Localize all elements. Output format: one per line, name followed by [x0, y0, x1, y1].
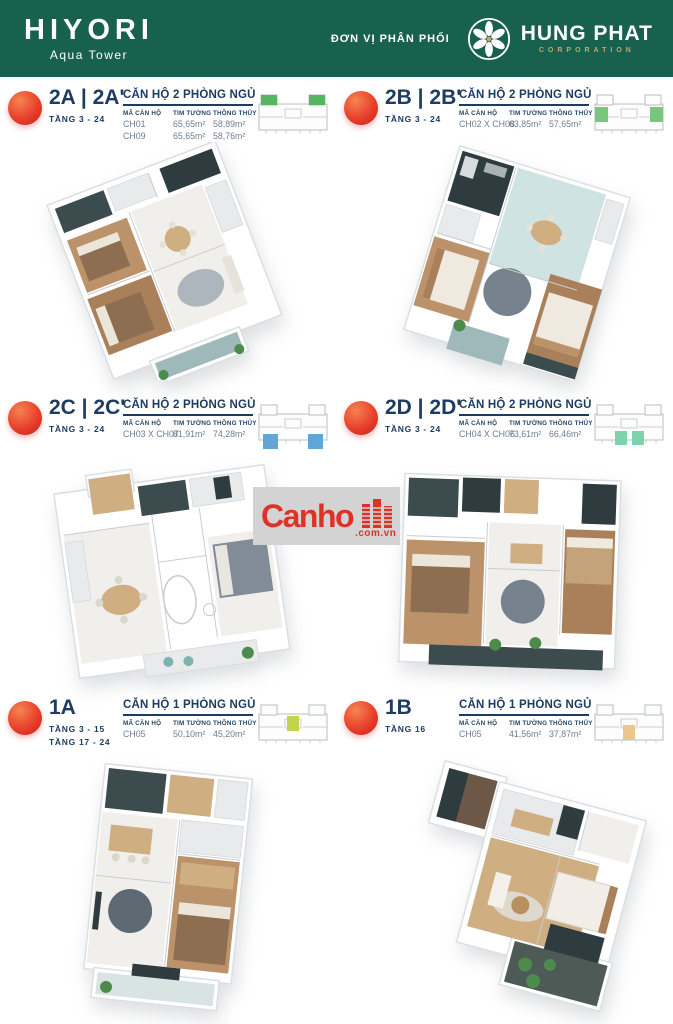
col-header-net: THÔNG THỦY [549, 110, 589, 117]
keyplan-highlight [263, 434, 278, 449]
net-area: 37,87m² [549, 729, 589, 739]
gross-area: 81,91m² [173, 429, 213, 439]
keyplan-highlight [595, 107, 608, 122]
unit-floor-range: TẦNG 3 - 24 [49, 113, 123, 126]
floorplan-2a-render [0, 142, 327, 380]
distributor-name: HUNG PHAT [521, 23, 653, 44]
unit-badge-icon [344, 701, 378, 735]
unit-code: CH05 [459, 729, 509, 739]
unit-code: CH01 [123, 119, 173, 129]
unit-floor-range: TẦNG 17 - 24 [49, 736, 123, 749]
unit-card-1b: 1B TẦNG 16 CĂN HỘ 1 PHÒNG NGỦ MÃ CĂN HỘ … [336, 687, 673, 1024]
keyplan-highlight [623, 725, 635, 740]
unit-spec-table: CĂN HỘ 2 PHÒNG NGỦ MÃ CĂN HỘ TIM TƯỜNG T… [123, 89, 253, 141]
hungphat-flower-icon [466, 16, 512, 62]
unit-head-2b: 2B | 2B' TẦNG 3 - 24 CĂN HỘ 2 PHÒNG NGỦ … [336, 77, 673, 143]
keyplan-highlight [650, 107, 663, 122]
living-area [485, 522, 561, 646]
unit-head-2d: 2D | 2D' TẦNG 3 - 24 CĂN HỘ 2 PHÒNG NGỦ … [336, 387, 673, 453]
unit-card-1a: 1A TẦNG 3 - 15 TẦNG 17 - 24 CĂN HỘ 1 PHÒ… [0, 687, 336, 1024]
keyplan-2c-icon [253, 401, 333, 453]
table-title: CĂN HỘ 2 PHÒNG NGỦ [123, 89, 253, 106]
table-title: CĂN HỘ 1 PHÒNG NGỦ [123, 699, 253, 716]
col-header-net: THÔNG THỦY [549, 720, 589, 727]
keyplan-2d-icon [589, 401, 669, 453]
unit-code: CH09 [123, 131, 173, 141]
unit-title: 2D | 2D' [385, 397, 459, 419]
unit-code: CH02 X CH08 [459, 119, 509, 129]
gross-area: 73,61m² [509, 429, 549, 439]
floorplan-2d-render [340, 451, 670, 681]
floorplan-1b-render [346, 752, 673, 1018]
table-title: CĂN HỘ 2 PHÒNG NGỦ [459, 399, 589, 416]
gross-area: 65,65m² [173, 119, 213, 129]
gross-area: 50,10m² [173, 729, 213, 739]
gross-area: 41,56m² [509, 729, 549, 739]
net-area: 58,76m² [213, 131, 253, 141]
col-header-gross: TIM TƯỜNG [509, 110, 549, 117]
floorplan-2b-render [340, 142, 670, 380]
col-header-net: THÔNG THỦY [213, 110, 253, 117]
unit-badge-icon [344, 401, 378, 435]
unit-title: 1B [385, 697, 459, 719]
gross-area: 63,85m² [509, 119, 549, 129]
unit-badge-icon [344, 91, 378, 125]
unit-floor-range: TẦNG 16 [385, 723, 459, 736]
hiyori-logo: HIYORI Aqua Tower [24, 16, 154, 62]
unit-badge-icon [8, 401, 42, 435]
keyplan-highlight [309, 95, 325, 105]
col-header-gross: TIM TƯỜNG [173, 720, 213, 727]
unit-spec-table: CĂN HỘ 2 PHÒNG NGỦ MÃ CĂN HỘ TIM TƯỜNG T… [123, 399, 253, 439]
brand-subtitle: Aqua Tower [50, 48, 128, 62]
net-area: 74,28m² [213, 429, 253, 439]
keyplan-1b-icon [589, 701, 669, 753]
living-area [86, 811, 177, 970]
col-header-code: MÃ CĂN HỘ [459, 110, 509, 117]
col-header-gross: TIM TƯỜNG [509, 420, 549, 427]
net-area: 58,89m² [213, 119, 253, 129]
kitchen-dining-area [64, 523, 167, 664]
floorplan-2c-render [3, 451, 333, 681]
watermark-buildings-icon [360, 496, 396, 530]
unit-floor-range: TẦNG 3 - 15 [49, 723, 123, 736]
col-header-gross: TIM TƯỜNG [173, 420, 213, 427]
floorplan-1a-render [0, 752, 325, 1018]
header-bar: HIYORI Aqua Tower ĐƠN VỊ PHÂN PHỐI HUNG … [0, 0, 673, 77]
unit-title: 1A [49, 697, 123, 719]
table-title: CĂN HỘ 2 PHÒNG NGỦ [123, 399, 253, 416]
unit-title: 2C | 2C' [49, 397, 123, 419]
watermark-suffix: .com.vn [355, 528, 396, 539]
watermark-canho: Canho .com.vn [253, 487, 400, 545]
keyplan-1a-icon [253, 701, 333, 753]
keyplan-highlight [632, 431, 644, 445]
unit-card-2b: 2B | 2B' TẦNG 3 - 24 CĂN HỘ 2 PHÒNG NGỦ … [336, 77, 673, 387]
unit-floor-range: TẦNG 3 - 24 [49, 423, 123, 436]
unit-code: CH04 X CH06 [459, 429, 509, 439]
col-header-net: THÔNG THỦY [213, 720, 253, 727]
col-header-gross: TIM TƯỜNG [509, 720, 549, 727]
col-header-code: MÃ CĂN HỘ [123, 110, 173, 117]
col-header-code: MÃ CĂN HỘ [459, 720, 509, 727]
units-grid: 2A | 2A' TẦNG 3 - 24 CĂN HỘ 2 PHÒNG NGỦ … [0, 77, 673, 1024]
col-header-code: MÃ CĂN HỘ [123, 420, 173, 427]
unit-head-2c: 2C | 2C' TẦNG 3 - 24 CĂN HỘ 2 PHÒNG NGỦ … [0, 387, 336, 453]
hungphat-logo: HUNG PHAT CORPORATION [466, 16, 653, 62]
unit-title: 2B | 2B' [385, 87, 459, 109]
table-title: CĂN HỘ 2 PHÒNG NGỦ [459, 89, 589, 106]
keyplan-2a-icon [253, 91, 333, 143]
unit-title: 2A | 2A' [49, 87, 123, 109]
unit-spec-table: CĂN HỘ 2 PHÒNG NGỦ MÃ CĂN HỘ TIM TƯỜNG T… [459, 399, 589, 439]
unit-head-2a: 2A | 2A' TẦNG 3 - 24 CĂN HỘ 2 PHÒNG NGỦ … [0, 77, 336, 143]
unit-head-1b: 1B TẦNG 16 CĂN HỘ 1 PHÒNG NGỦ MÃ CĂN HỘ … [336, 687, 673, 753]
watermark-text: Canho [261, 500, 353, 532]
col-header-code: MÃ CĂN HỘ [459, 420, 509, 427]
keyplan-2b-icon [589, 91, 669, 143]
flyer-page: HIYORI Aqua Tower ĐƠN VỊ PHÂN PHỐI HUNG … [0, 0, 673, 1024]
unit-spec-table: CĂN HỘ 1 PHÒNG NGỦ MÃ CĂN HỘ TIM TƯỜNG T… [123, 699, 253, 739]
col-header-net: THÔNG THỦY [213, 420, 253, 427]
net-area: 66,46m² [549, 429, 589, 439]
unit-spec-table: CĂN HỘ 1 PHÒNG NGỦ MÃ CĂN HỘ TIM TƯỜNG T… [459, 699, 589, 739]
net-area: 45,20m² [213, 729, 253, 739]
unit-card-2a: 2A | 2A' TẦNG 3 - 24 CĂN HỘ 2 PHÒNG NGỦ … [0, 77, 336, 387]
keyplan-highlight [261, 95, 277, 105]
keyplan-highlight [615, 431, 627, 445]
keyplan-highlight [287, 716, 299, 731]
distributor-corp: CORPORATION [539, 47, 635, 54]
keyplan-highlight [308, 434, 323, 449]
distributor-label: ĐƠN VỊ PHÂN PHỐI [331, 33, 450, 45]
col-header-code: MÃ CĂN HỘ [123, 720, 173, 727]
unit-floor-range: TẦNG 3 - 24 [385, 113, 459, 126]
unit-badge-icon [8, 701, 42, 735]
col-header-gross: TIM TƯỜNG [173, 110, 213, 117]
unit-spec-table: CĂN HỘ 2 PHÒNG NGỦ MÃ CĂN HỘ TIM TƯỜNG T… [459, 89, 589, 129]
unit-code: CH05 [123, 729, 173, 739]
unit-badge-icon [8, 91, 42, 125]
unit-head-1a: 1A TẦNG 3 - 15 TẦNG 17 - 24 CĂN HỘ 1 PHÒ… [0, 687, 336, 753]
gross-area: 65,65m² [173, 131, 213, 141]
brand-title: HIYORI [24, 16, 154, 45]
unit-floor-range: TẦNG 3 - 24 [385, 423, 459, 436]
net-area: 57,65m² [549, 119, 589, 129]
table-title: CĂN HỘ 1 PHÒNG NGỦ [459, 699, 589, 716]
unit-code: CH03 X CH07 [123, 429, 173, 439]
col-header-net: THÔNG THỦY [549, 420, 589, 427]
